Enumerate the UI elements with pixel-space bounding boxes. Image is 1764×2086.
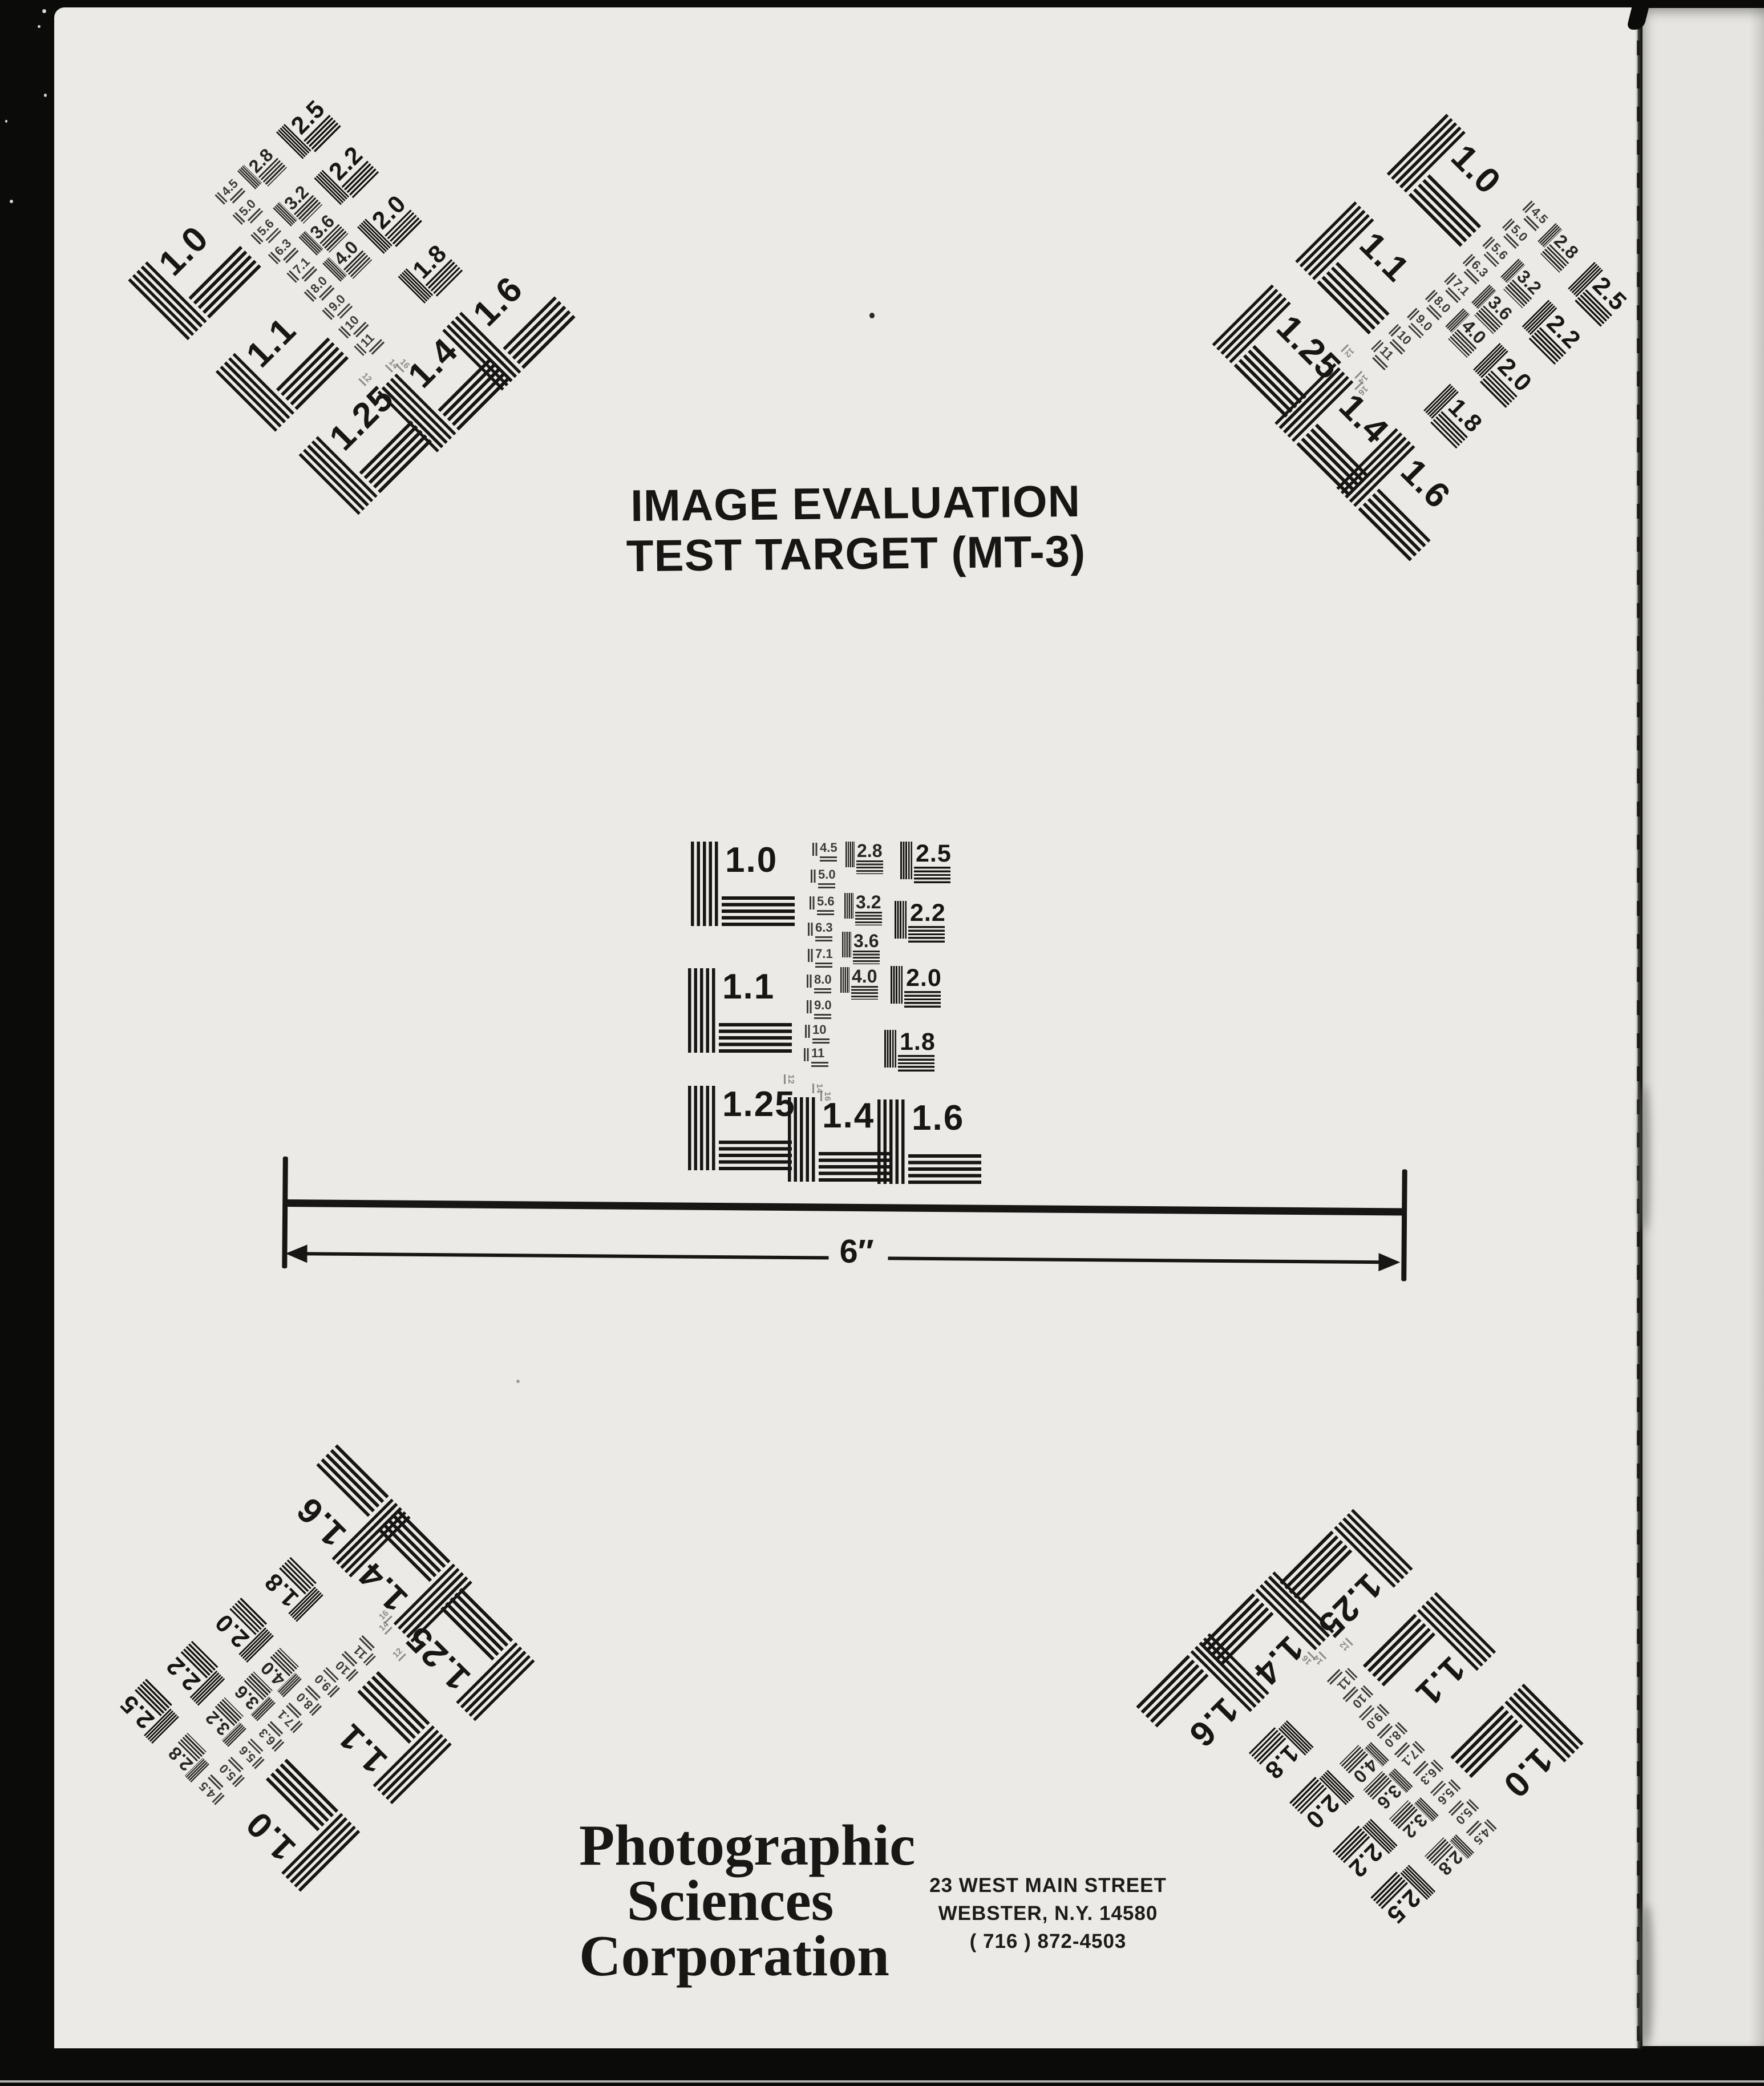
resolution-bars-horizontal bbox=[815, 936, 832, 942]
resolution-bars-vertical bbox=[808, 949, 813, 962]
gutter-smudge bbox=[1640, 1087, 1650, 1230]
patch-number: 1.1 bbox=[722, 969, 775, 1005]
resolution-bars-horizontal bbox=[914, 867, 950, 884]
patch-number: 5.6 bbox=[817, 895, 835, 908]
resolution-bars-vertical bbox=[807, 975, 812, 988]
resolution-bars-horizontal bbox=[904, 991, 941, 1009]
resolution-bars-horizontal bbox=[851, 986, 878, 1000]
resolution-bars-vertical bbox=[895, 901, 907, 939]
patch-number: 3.2 bbox=[856, 893, 881, 911]
resolution-bars-horizontal bbox=[855, 912, 882, 925]
title-line-2: TEST TARGET (MT-3) bbox=[619, 526, 1093, 581]
resolution-bars-horizontal bbox=[898, 1055, 934, 1073]
patch-number: 1.1 bbox=[241, 312, 303, 374]
resolution-bars-vertical bbox=[804, 1048, 809, 1061]
address-city: WEBSTER, N.Y. 14580 bbox=[920, 1899, 1176, 1927]
patch-number: 3.6 bbox=[853, 932, 879, 950]
resolution-bars-horizontal bbox=[811, 1062, 828, 1068]
scale-bar-right-cap bbox=[1401, 1169, 1407, 1281]
gutter-smudge bbox=[1640, 1906, 1653, 2043]
page-edge-shadow bbox=[1749, 8, 1764, 2046]
scale-bar-rule bbox=[285, 1199, 1405, 1215]
resolution-bars-vertical bbox=[691, 842, 719, 926]
dust-speck bbox=[38, 25, 41, 28]
resolution-bars-horizontal bbox=[812, 1038, 830, 1044]
resolution-bars-vertical bbox=[811, 870, 816, 883]
resolution-bars-vertical bbox=[845, 842, 855, 867]
resolution-bars-vertical bbox=[840, 967, 849, 993]
patch-number: 1.8 bbox=[900, 1030, 936, 1054]
resolution-bars-vertical bbox=[844, 893, 853, 919]
scale-arrow-right-segment bbox=[888, 1256, 1385, 1264]
dust-speck bbox=[869, 313, 875, 318]
patch-number: 2.8 bbox=[857, 842, 882, 860]
address-phone: ( 716 ) 872-4503 bbox=[920, 1927, 1176, 1955]
resolution-bars-vertical bbox=[805, 1025, 810, 1038]
patch-number-sideways: 12 bbox=[784, 1074, 795, 1084]
company-address: 23 WEST MAIN STREET WEBSTER, N.Y. 14580 … bbox=[920, 1871, 1176, 1955]
resolution-bars-horizontal bbox=[814, 1014, 831, 1020]
resolution-bars-horizontal bbox=[820, 856, 837, 862]
resolution-bars-vertical bbox=[891, 966, 903, 1004]
wordmark-line-3: Corporation bbox=[579, 1929, 881, 1984]
resolution-bars-horizontal bbox=[815, 963, 832, 968]
dust-speck bbox=[516, 1380, 520, 1383]
page-gutter-line bbox=[1637, 7, 1640, 2048]
scan-bottom-edge-line bbox=[0, 2080, 1764, 2083]
dust-speck bbox=[42, 9, 46, 13]
dust-speck bbox=[10, 200, 13, 203]
patch-number: 10 bbox=[812, 1024, 826, 1036]
patch-number: 1.1 bbox=[1353, 227, 1415, 289]
resolution-bars-vertical bbox=[884, 1030, 897, 1068]
company-wordmark: Photographic Sciences Corporation bbox=[579, 1818, 881, 1984]
resolution-bars-vertical bbox=[810, 896, 815, 909]
scale-bar: 6″ bbox=[282, 1154, 1410, 1291]
patch-number: 1.4 bbox=[822, 1098, 875, 1134]
patch-number: 6.3 bbox=[815, 921, 833, 934]
patch-number: 1.0 bbox=[725, 843, 778, 878]
address-street: 23 WEST MAIN STREET bbox=[920, 1871, 1176, 1899]
scanned-page: 1.01.11.251.41.62.52.22.01.82.83.23.64.0… bbox=[0, 0, 1764, 2086]
scale-length-label: 6″ bbox=[825, 1232, 888, 1271]
resolution-bars-horizontal bbox=[908, 926, 945, 944]
dust-speck bbox=[44, 94, 47, 97]
patch-number: 1.1 bbox=[1409, 1650, 1471, 1712]
patch-number-sideways: 16 bbox=[820, 1091, 832, 1101]
patch-number: 4.5 bbox=[820, 842, 838, 854]
resolution-bars-vertical bbox=[808, 923, 813, 936]
resolution-bars-vertical bbox=[807, 1000, 812, 1013]
patch-number: 1.6 bbox=[912, 1101, 964, 1136]
patch-number: 1.1 bbox=[331, 1717, 394, 1779]
patch-number: 11 bbox=[811, 1047, 824, 1060]
patch-number: 2.2 bbox=[910, 901, 946, 925]
patch-number: 1.25 bbox=[722, 1087, 796, 1122]
resolution-bars-vertical bbox=[812, 843, 818, 856]
resolution-bars-horizontal bbox=[722, 896, 795, 928]
adjacent-page-sliver bbox=[1642, 8, 1764, 2046]
patch-number: 9.0 bbox=[814, 999, 832, 1012]
resolution-bars-horizontal bbox=[817, 910, 834, 916]
resolution-bars-vertical bbox=[688, 968, 717, 1053]
dust-speck bbox=[5, 120, 7, 123]
scale-arrow-left-segment bbox=[299, 1252, 828, 1259]
resolution-bars-horizontal bbox=[814, 988, 831, 994]
resolution-bars-vertical bbox=[900, 842, 913, 879]
patch-number: 2.0 bbox=[906, 966, 942, 991]
patch-number: 5.0 bbox=[818, 868, 836, 881]
patch-number: 2.5 bbox=[916, 842, 952, 866]
patch-number: 7.1 bbox=[815, 948, 833, 960]
resolution-bars-horizontal bbox=[818, 883, 835, 889]
test-target-center: 1.01.11.251.41.62.52.22.01.82.83.23.64.0… bbox=[688, 842, 956, 1161]
patch-number: 8.0 bbox=[814, 973, 832, 986]
resolution-bars-horizontal bbox=[856, 860, 883, 874]
resolution-bars-horizontal bbox=[719, 1023, 792, 1055]
title-line-1: IMAGE EVALUATION bbox=[618, 476, 1093, 531]
resolution-bars-vertical bbox=[842, 932, 851, 957]
title-block: IMAGE EVALUATION TEST TARGET (MT-3) bbox=[618, 476, 1093, 581]
wordmark-line-2: Sciences bbox=[579, 1873, 881, 1929]
resolution-bars-horizontal bbox=[853, 951, 880, 964]
arrowhead-right-icon bbox=[1378, 1253, 1400, 1271]
wordmark-line-1: Photographic bbox=[579, 1818, 881, 1873]
patch-number: 4.0 bbox=[852, 967, 877, 985]
